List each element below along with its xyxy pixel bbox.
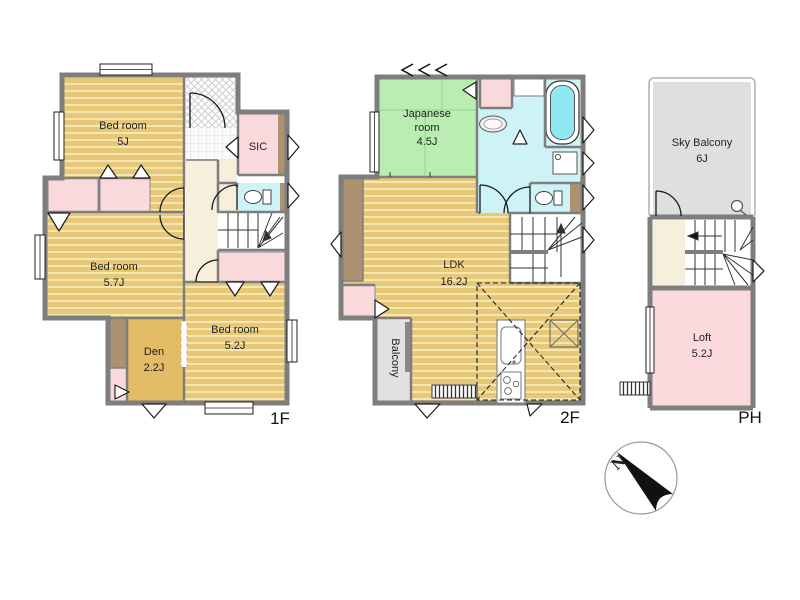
windows-ph — [646, 307, 654, 373]
stair-hall-ph — [653, 220, 685, 285]
loft-ladder-icon — [432, 385, 477, 398]
faucet-icon — [512, 360, 515, 363]
room-label-ldk: LDK — [443, 259, 465, 271]
room-size-bedroom-5j: 5J — [117, 136, 129, 148]
kitchen-sink-icon — [501, 327, 521, 364]
north-compass: N — [595, 433, 687, 525]
floor-plan-2f: Japanese room 4.5J LDK 16.2J Balcony 2F — [330, 55, 602, 430]
toilet-icon — [536, 191, 563, 205]
room-size-den: 2.2J — [144, 362, 165, 374]
room-label-bedroom-5-7j: Bed room — [90, 261, 138, 273]
room-label-loft: Loft — [693, 332, 711, 344]
windows-2f — [370, 112, 379, 172]
kitchen-door-marker-icon — [527, 404, 542, 416]
entrance-porch — [185, 75, 238, 128]
den-closet — [108, 318, 127, 368]
washing-machine-icon — [553, 152, 577, 174]
toilet-window-marker-icon — [288, 183, 299, 208]
shutter-chevron-icon — [436, 64, 447, 76]
room-label-den: Den — [144, 346, 164, 358]
floor-label-1f: 1F — [270, 409, 290, 428]
room-size-bedroom-5-7j: 5.7J — [104, 277, 125, 289]
room-size-bedroom-5-2j: 5.2J — [225, 340, 246, 352]
west-window-marker-icon — [331, 232, 341, 257]
hallway — [186, 160, 218, 282]
room-size-japanese: 4.5J — [417, 136, 438, 148]
bath-counter — [514, 79, 544, 96]
room-label-balcony: Balcony — [389, 338, 401, 378]
hallway-toilet-front — [218, 160, 237, 212]
sic-window-marker-icon — [288, 135, 299, 160]
ldk-wall-closet — [341, 178, 363, 281]
loft-ladder-icon — [620, 382, 650, 395]
closet-left — [48, 178, 98, 212]
room-den — [127, 318, 184, 403]
ldk-pink-closet — [341, 285, 375, 318]
shutter-chevron-icon — [402, 64, 413, 76]
floor-plan-1f: Bed room 5J SIC Bed room 5.7J Den 2.2J B… — [30, 55, 305, 430]
room-label-bedroom-5j: Bed room — [99, 120, 147, 132]
window-marker-icon — [583, 117, 594, 143]
room-size-loft: 5.2J — [692, 348, 713, 360]
bathtub-icon — [546, 81, 579, 144]
washbasin-icon — [480, 116, 507, 132]
window-marker-icon — [583, 227, 594, 253]
balcony-door-marker-icon — [415, 404, 440, 418]
floor-plan-ph: Sky Balcony 6J Loft 5.2J PH — [610, 55, 785, 430]
den-exterior-door-icon — [142, 404, 166, 418]
toilet-icon — [245, 190, 272, 204]
room-label-japanese-1: Japanese — [403, 108, 451, 120]
closet-right — [100, 178, 150, 212]
room-size-sky-balcony: 6J — [696, 153, 708, 165]
linen-closet — [480, 78, 512, 108]
window-marker-icon — [583, 185, 594, 210]
window-marker-icon — [583, 152, 594, 175]
shutter-chevron-icon — [419, 64, 430, 76]
room-label-bedroom-5-2j: Bed room — [211, 324, 259, 336]
floor-label-2f: 2F — [560, 408, 580, 427]
room-size-ldk: 16.2J — [441, 276, 468, 288]
floor-label-ph: PH — [738, 408, 762, 427]
stair-window-marker-icon — [753, 260, 764, 282]
sliding-partition — [181, 321, 187, 367]
room-label-sky-balcony: Sky Balcony — [672, 137, 733, 149]
room-label-japanese-2: room — [414, 122, 439, 134]
closet-bedroom-5-2j — [218, 252, 287, 282]
floor-plan-sheet: Bed room 5J SIC Bed room 5.7J Den 2.2J B… — [0, 0, 800, 600]
room-label-sic: SIC — [249, 141, 267, 153]
staircase-2f — [510, 213, 582, 283]
